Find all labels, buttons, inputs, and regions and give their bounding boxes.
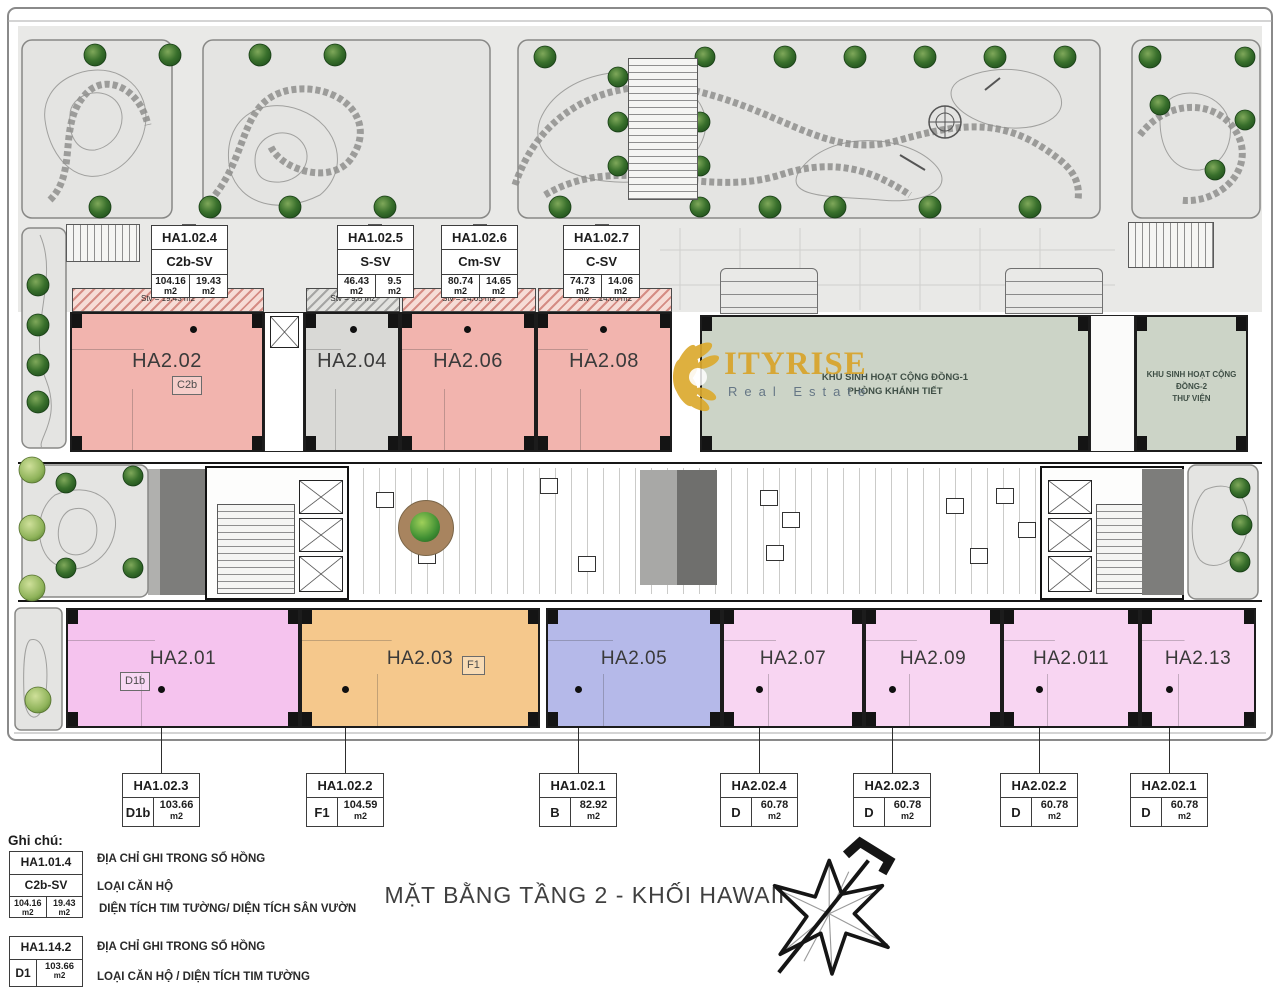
stair-right [1128,222,1214,268]
tree-icon [27,274,49,296]
area-value: 104.16 [155,276,186,287]
legend-heading: Ghi chú: [8,833,63,848]
tree-icon [1150,95,1170,115]
legend-note: ĐỊA CHỈ GHI TRONG SỔ HỒNG [97,853,265,865]
tree-icon [19,575,45,601]
community-room-line2: THƯ VIỆN [1172,394,1210,403]
leader-dot [342,686,349,693]
floor-plan-canvas: Stv = 19.43 m2 Stv = 9.5 m2 Stv = 14.65 … [0,0,1280,990]
unit-info-box: HA1.02.6 Cm-SV 80.74m2 14.65m2 [441,225,518,298]
tree-icon [774,46,796,68]
legend-code: HA1.01.4 [10,852,82,875]
unit-code: HA1.02.4 [152,226,227,250]
unit-info-box: HA1.02.5 S-SV 46.43m2 9.5m2 [337,225,414,298]
unit-type-tag: C2b [172,376,202,395]
unit-name: HA2.03 [302,648,538,670]
leader-dot [1166,686,1173,693]
tree-icon [1230,552,1250,572]
unit-HA2.03: HA2.03 F1 [300,608,540,728]
tree-icon [27,354,49,376]
leader-dot [889,686,896,693]
leader-dot [575,686,582,693]
legend-code: HA1.14.2 [10,937,82,960]
legend-note: ĐỊA CHỈ GHI TRONG SỔ HỒNG [97,941,265,953]
tree-icon [19,515,45,541]
tree-icon [27,314,49,336]
brand-tagline: Real Estate [728,384,872,399]
area-value: 14.06 [608,276,633,287]
unit-type: D [721,798,752,826]
unit-HA2.01: HA2.01 D1b [66,608,300,728]
legend-note: LOẠI CĂN HỘ / DIỆN TÍCH TIM TƯỜNG [97,971,310,983]
legend-note: DIỆN TÍCH TIM TƯỜNG/ DIỆN TÍCH SÂN VƯỜN [99,903,356,915]
community-room-line1: KHU SINH HOẠT CỘNG ĐỒNG-2 [1147,370,1237,391]
tree-icon [1205,160,1225,180]
tree-icon [534,46,556,68]
tree-icon [27,391,49,413]
tree-icon [919,196,941,218]
tree-icon [824,196,846,218]
tree-icon [56,473,76,493]
unit-name: HA2.04 [306,350,398,373]
unit-code: HA1.02.1 [540,774,616,798]
unit-name: HA2.13 [1142,648,1254,670]
unit-type: C2b-SV [152,250,227,274]
unit-name: HA2.07 [724,648,862,670]
unit-info-box: HA1.02.2F1104.59m2 [306,773,384,827]
tree-icon [1230,478,1250,498]
tree-icon [1235,110,1255,130]
area-value: 60.78m2 [1162,798,1207,826]
unit-code: HA2.02.3 [854,774,930,798]
marker-dot [350,326,357,333]
unit-code: HA1.02.3 [123,774,199,798]
unit-code: HA2.02.1 [1131,774,1207,798]
tree-icon [1019,196,1041,218]
legend-sample-box: HA1.14.2 D1 103.66m2 [9,936,83,987]
unit-info-box: HA1.02.1B82.92m2 [539,773,617,827]
unit-type-tag: D1b [120,672,150,691]
brand-flower-icon [668,338,726,414]
area-value: 60.78m2 [885,798,930,826]
tree-icon [374,196,396,218]
legend-sample-box-sv: HA1.01.4 C2b-SV 104.16m2 19.43m2 [9,851,83,918]
unit-code: HA1.02.5 [338,226,413,250]
tree-icon [608,156,628,176]
tree-icon [608,112,628,132]
legend-type: C2b-SV [10,875,82,898]
unit-name: HA2.06 [402,350,534,373]
unit-name: HA2.05 [548,648,720,670]
tree-icon [690,197,710,217]
leader-dot [1036,686,1043,693]
tree-icon [279,196,301,218]
marker-dot [190,326,197,333]
area-value: 19.43 [196,276,221,287]
unit-type: Cm-SV [442,250,517,274]
marker-dot [600,326,607,333]
grand-stair [628,58,698,200]
tree-icon [56,558,76,578]
unit-type: D [854,798,885,826]
tree-icon [759,196,781,218]
entrance-steps [1005,268,1103,314]
compass-icon [762,832,902,987]
unit-HA2.13: HA2.13 [1140,608,1256,728]
unit-code: HA2.02.4 [721,774,797,798]
unit-info-box: HA1.02.7 C-SV 74.73m2 14.06m2 [563,225,640,298]
entrance-steps [720,268,818,314]
unit-code: HA2.02.2 [1001,774,1077,798]
area-value: 82.92m2 [571,798,616,826]
brand-watermark: ITYRISE Real Estate [668,338,968,418]
tree-icon [844,46,866,68]
unit-type: D [1131,798,1162,826]
marker-dot [464,326,471,333]
unit-info-box: HA2.02.4D60.78m2 [720,773,798,827]
unit-name: HA2.09 [866,648,1000,670]
area-value: 103.66m2 [154,798,199,826]
tree-icon [1054,46,1076,68]
tree-icon [1235,47,1255,67]
tree-icon [914,46,936,68]
unit-type: F1 [307,798,338,826]
unit-name: HA2.02 [72,350,262,373]
unit-info-box: HA2.02.3D60.78m2 [853,773,931,827]
tree-icon [695,47,715,67]
tree-icon [984,46,1006,68]
unit-info-box: HA2.02.1D60.78m2 [1130,773,1208,827]
page-title: MẶT BẰNG TẦNG 2 - KHỐI HAWAII [340,882,830,909]
tree-icon [1232,515,1252,535]
unit-HA2.011: HA2.011 [1002,608,1140,728]
unit-code: HA1.02.7 [564,226,639,250]
unit-HA2.06: HA2.06 [400,312,536,452]
service-core [1090,315,1135,452]
unit-HA2.05: HA2.05 [546,608,722,728]
unit-HA2.07: HA2.07 [722,608,864,728]
stair-left [66,224,140,262]
tree-icon [89,196,111,218]
unit-HA2.04: HA2.04 [304,312,400,452]
tree-icon [324,44,346,66]
tree-icon [199,196,221,218]
unit-HA2.08: HA2.08 [536,312,672,452]
leader-dot [756,686,763,693]
brand-name: ITYRISE [724,346,867,383]
legend-type: D1 [10,960,37,986]
unit-name: HA2.08 [538,350,670,373]
unit-name: HA2.01 [68,648,298,670]
unit-type: D1b [123,798,154,826]
unit-type: B [540,798,571,826]
elevator-shaft [270,316,299,348]
tree-icon [608,67,628,87]
area-value: 14.65 [486,276,511,287]
shaft [264,312,304,452]
area-value: 46.43 [344,276,369,287]
tree-icon [84,44,106,66]
unit-type: S-SV [338,250,413,274]
tree-icon [19,457,45,483]
tree-icon [1139,46,1161,68]
area-value: 104.59m2 [338,798,383,826]
tree-icon [25,687,51,713]
leader-dot [158,686,165,693]
area-value: 60.78m2 [1032,798,1077,826]
unit-type-tag: F1 [462,656,485,675]
unit-name: HA2.011 [1004,648,1138,670]
unit-info-box: HA2.02.2D60.78m2 [1000,773,1078,827]
area-value: 60.78m2 [752,798,797,826]
unit-code: HA1.02.2 [307,774,383,798]
tree-icon [123,466,143,486]
unit-type: C-SV [564,250,639,274]
area-value: 74.73 [570,276,595,287]
tree-icon [249,44,271,66]
unit-type: D [1001,798,1032,826]
unit-HA2.02: HA2.02 C2b [70,312,264,452]
legend-note: LOẠI CĂN HỘ [97,881,173,893]
area-value: 80.74 [448,276,473,287]
community-room-2: KHU SINH HOẠT CỘNG ĐỒNG-2 THƯ VIỆN [1135,315,1248,452]
tree-icon [123,558,143,578]
unit-info-box: HA1.02.3D1b103.66m2 [122,773,200,827]
unit-code: HA1.02.6 [442,226,517,250]
unit-info-box: HA1.02.4 C2b-SV 104.16m2 19.43m2 [151,225,228,298]
tree-icon [549,196,571,218]
unit-HA2.09: HA2.09 [864,608,1002,728]
area-value: 9.5 [388,276,402,287]
tree-icon [159,44,181,66]
